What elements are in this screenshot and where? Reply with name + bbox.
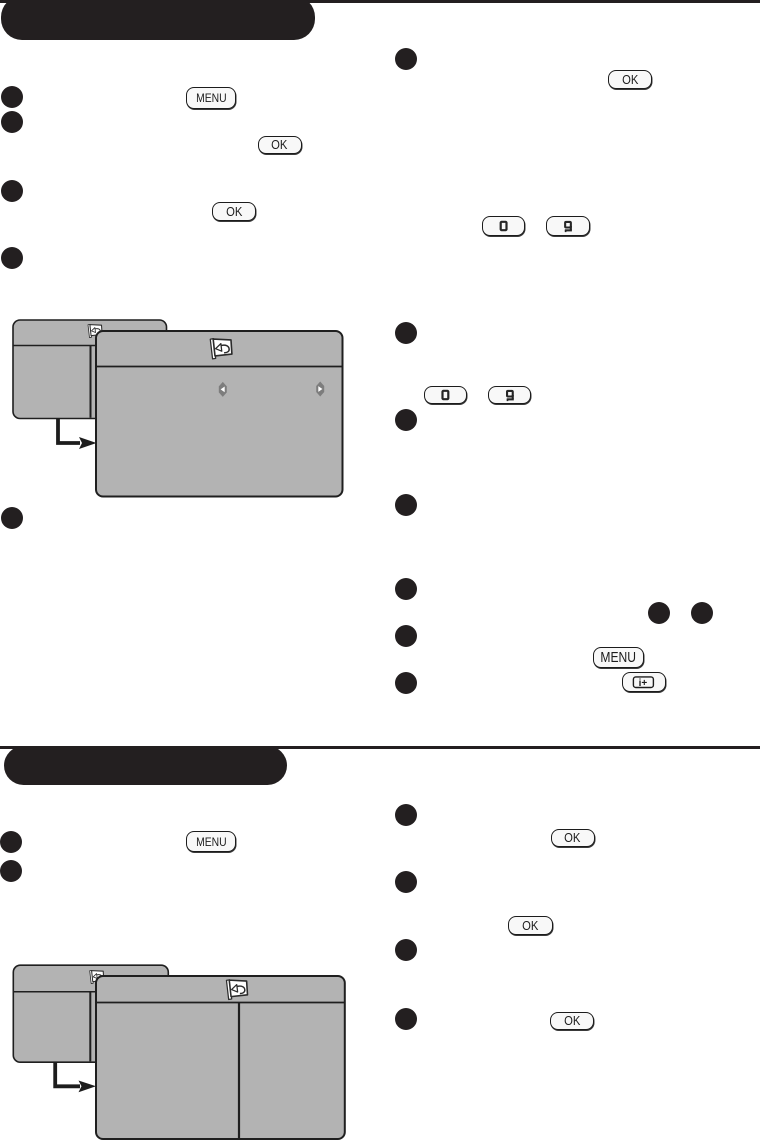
svg-text:i+: i+	[639, 678, 648, 689]
